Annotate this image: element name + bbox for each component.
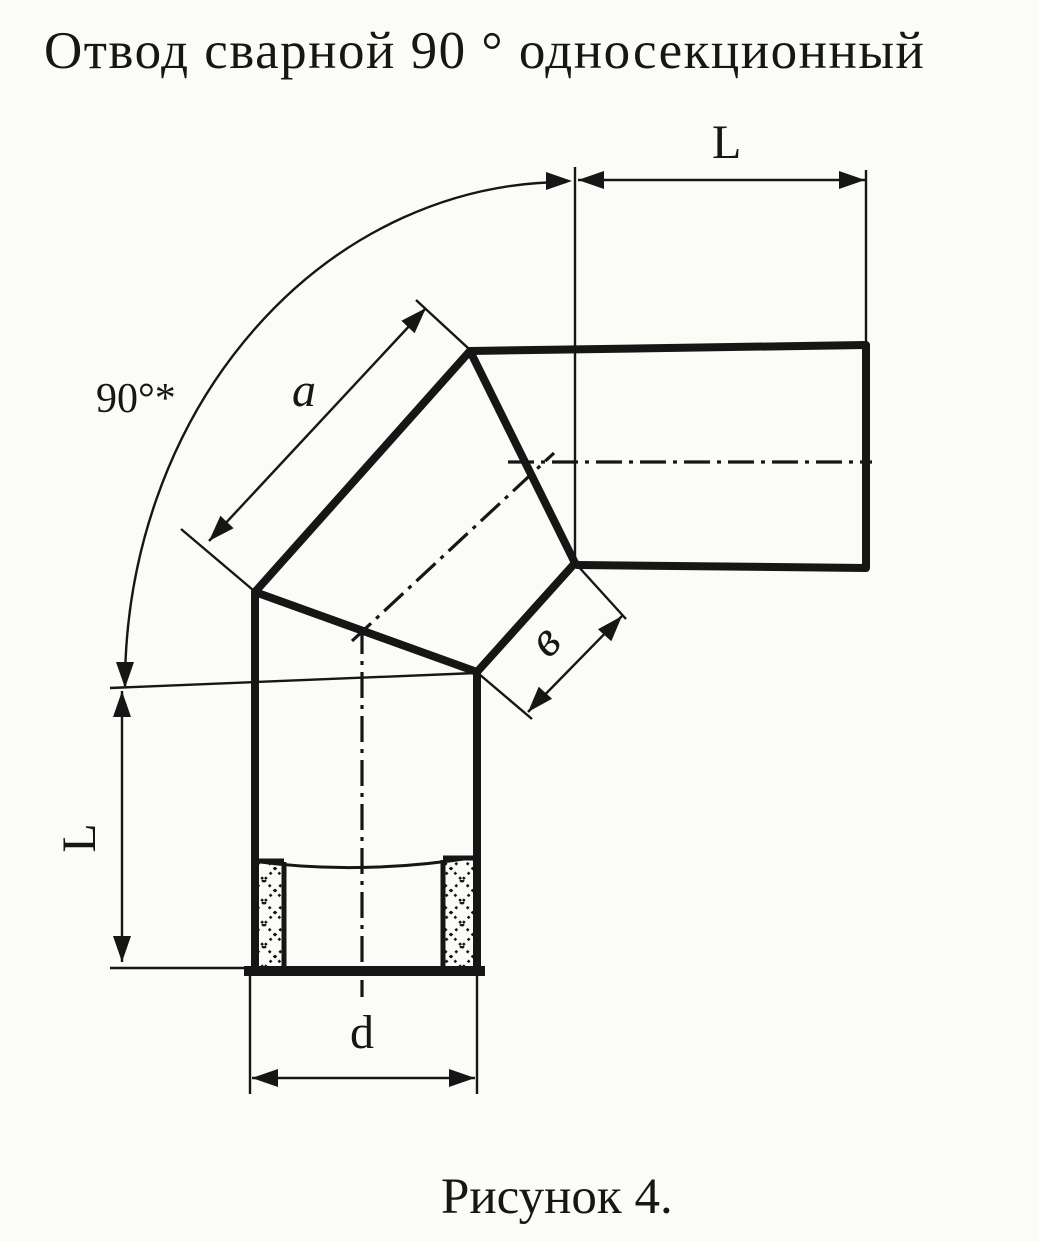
arrowhead-right — [449, 1069, 475, 1087]
middle-section-outer-edge — [255, 351, 470, 592]
dimension-section-side: a — [181, 300, 468, 590]
page-title: Отвод сварной 90 ° односекционный — [44, 22, 925, 80]
centerlines — [352, 453, 872, 997]
horizontal-pipe-outline — [470, 345, 866, 568]
arrowhead-right — [839, 171, 865, 189]
extension-line — [416, 300, 468, 348]
left-length-label: L — [53, 823, 106, 852]
angle-arc — [125, 182, 566, 686]
miter-width-label: в — [517, 613, 572, 668]
arrowhead-left — [578, 171, 604, 189]
elbow-technical-drawing: Отвод сварной 90 ° односекционный Рисуно… — [0, 0, 1038, 1242]
arrowhead-top — [546, 172, 572, 190]
arrowhead-bottom — [113, 936, 131, 962]
weld-seam-lower — [255, 592, 477, 672]
figure-caption: Рисунок 4. — [441, 1169, 673, 1225]
extension-line — [479, 674, 532, 719]
extension-line — [577, 565, 626, 619]
arrowhead-left — [252, 1069, 278, 1087]
left-wall-hatch — [253, 861, 284, 968]
weld-seam-upper — [470, 351, 575, 563]
right-wall-hatch — [443, 858, 477, 968]
arrowhead-top — [113, 691, 131, 717]
top-length-label: L — [712, 116, 741, 169]
drawing-page: Отвод сварной 90 ° односекционный Рисуно… — [0, 0, 1038, 1242]
middle-section-centerline — [352, 453, 554, 641]
dimension-angle-arc: 90°* — [96, 172, 572, 688]
dimension-top-length: L — [575, 116, 866, 562]
extension-line — [110, 673, 476, 688]
arrowhead-bottom — [116, 662, 134, 688]
angle-label: 90°* — [96, 376, 176, 422]
diameter-label: d — [350, 1006, 374, 1059]
extension-line — [181, 529, 253, 590]
section-side-label: a — [292, 364, 316, 417]
